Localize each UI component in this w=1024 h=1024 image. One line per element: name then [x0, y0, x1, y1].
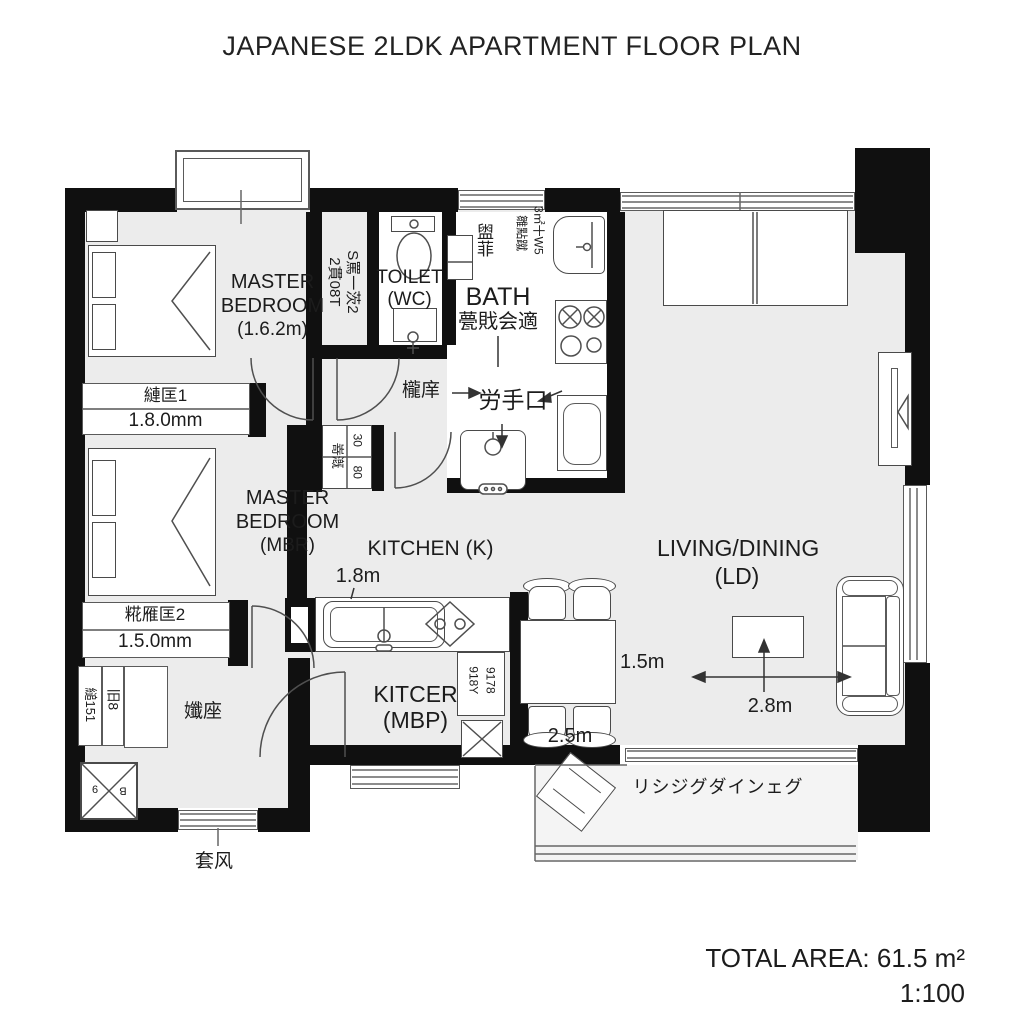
room-label-master-bedroom-2: BEDROOM [215, 512, 360, 533]
balcony-label: リシジグダインェグ [618, 778, 818, 797]
room-label-toilet: (WC) [372, 290, 447, 310]
closet2-label: 糀雁匡2 [86, 606, 224, 624]
closet2-size: 1.5.0mm [86, 632, 224, 652]
tv-triangle [898, 396, 908, 428]
room-label-bath-jp: 甍戝会適 [448, 312, 548, 333]
room-label-living-dining: LIVING/DINING [657, 536, 817, 560]
room-label-toilet: TOILET [372, 268, 447, 288]
total-area-label: TOTAL AREA: 61.5 m² [565, 945, 965, 972]
dim-dining-width: 2.5m [540, 726, 600, 747]
grid-vertical-label: 嵜漑 [330, 436, 344, 476]
annotation-back-door: 労手口 [476, 388, 550, 412]
grid-vertical-label: 30 [351, 428, 364, 452]
counter-vertical-label: 918Y [467, 655, 480, 705]
bath-vertical-label: 雛點蹴 [515, 203, 528, 263]
scale-label: 1:100 [565, 980, 965, 1007]
dim-kitchen-sink: 1.8m [328, 566, 388, 587]
linework [0, 0, 1024, 1024]
room-label-bath: BATH [453, 284, 543, 310]
shaft-label: 9 [88, 782, 102, 794]
annotation-door: 櫳庠 [396, 381, 446, 401]
sink-details [376, 607, 392, 651]
room-label-kitcer: (MBP) [368, 708, 463, 732]
wardrobe-vertical-label: 2貫08T [326, 237, 342, 327]
hall-vertical-label: 縋151 [83, 675, 97, 735]
wardrobe-vertical-label: S罵一茨2 [344, 237, 360, 327]
bath-vertical-label: 3㎡十W5 [532, 200, 545, 260]
wardrobe-divider [753, 212, 757, 304]
counter-vertical-label: 9178 [484, 655, 497, 705]
ih-diamond [426, 602, 474, 646]
room-size-master-bedroom-2: (MBR) [215, 536, 360, 556]
room-label-kitchen: KITCHEN (K) [358, 538, 503, 560]
shaft-label: B [116, 784, 130, 796]
sink-vertical-label: 盥菲 [470, 214, 492, 266]
room-label-master-bedroom-1: MASTER [200, 272, 345, 293]
room-size-master-bedroom-1: (1.6.2m) [200, 320, 345, 340]
annotation-entrance: 套风 [188, 852, 240, 872]
grid-vertical-label: 80 [351, 460, 364, 484]
closet1-label: 縺匡1 [88, 387, 243, 405]
annotation-hall-door: 孅座 [178, 702, 228, 722]
closet1-size: 1.8.0mm [88, 411, 243, 431]
stove-burners [559, 306, 604, 356]
dim-dining-depth: 1.5m [620, 652, 680, 673]
room-label-living-dining: (LD) [657, 564, 817, 588]
room-label-master-bedroom-1: BEDROOM [200, 296, 345, 317]
room-label-kitcer: KITCER [368, 682, 463, 706]
floor-plan-canvas: JAPANESE 2LDK APARTMENT FLOOR PLAN [0, 0, 1024, 1024]
room-label-master-bedroom-2: MASTER [215, 488, 360, 509]
dim-living-width: 2.8m [740, 696, 800, 717]
hall-vertical-label: 旧8 [106, 679, 121, 719]
